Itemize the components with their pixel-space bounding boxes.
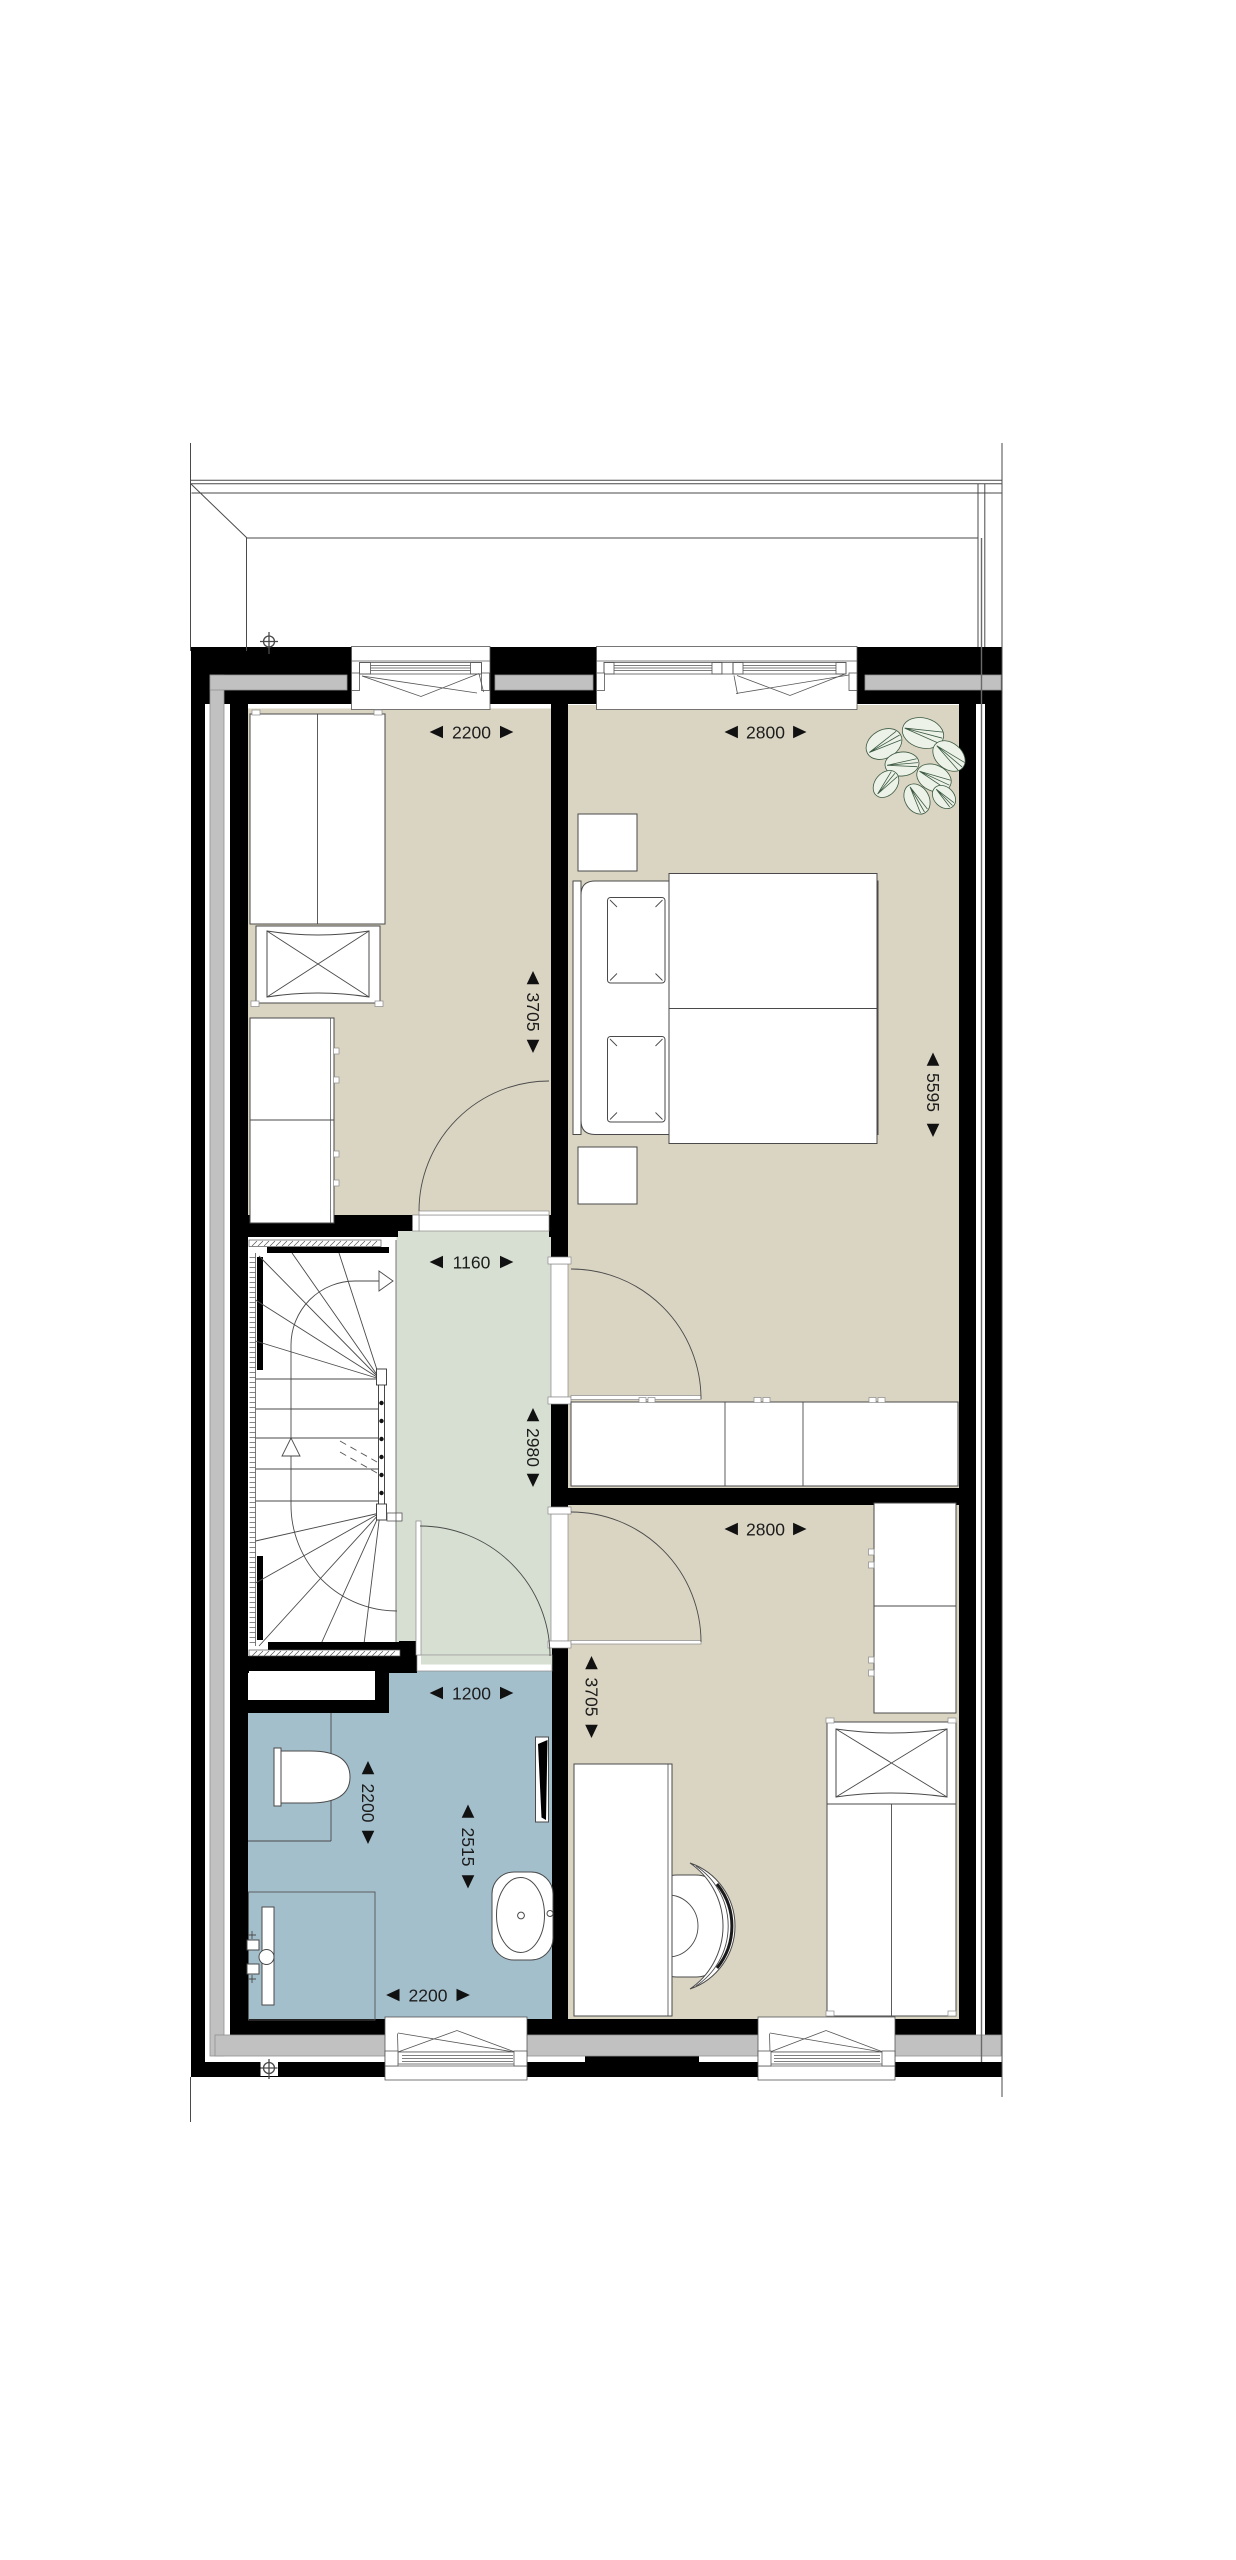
svg-text:1160: 1160 xyxy=(453,1253,491,1273)
svg-text:2980: 2980 xyxy=(523,1428,543,1467)
svg-text:1200: 1200 xyxy=(452,1684,491,1704)
svg-text:2800: 2800 xyxy=(746,723,785,743)
svg-text:3705: 3705 xyxy=(523,993,543,1032)
svg-text:5595: 5595 xyxy=(923,1073,943,1112)
svg-text:2200: 2200 xyxy=(358,1784,378,1823)
svg-text:3705: 3705 xyxy=(581,1678,601,1717)
svg-text:2515: 2515 xyxy=(458,1828,478,1867)
svg-text:2200: 2200 xyxy=(409,1986,448,2006)
svg-text:2200: 2200 xyxy=(452,723,491,743)
svg-text:2800: 2800 xyxy=(746,1520,785,1540)
